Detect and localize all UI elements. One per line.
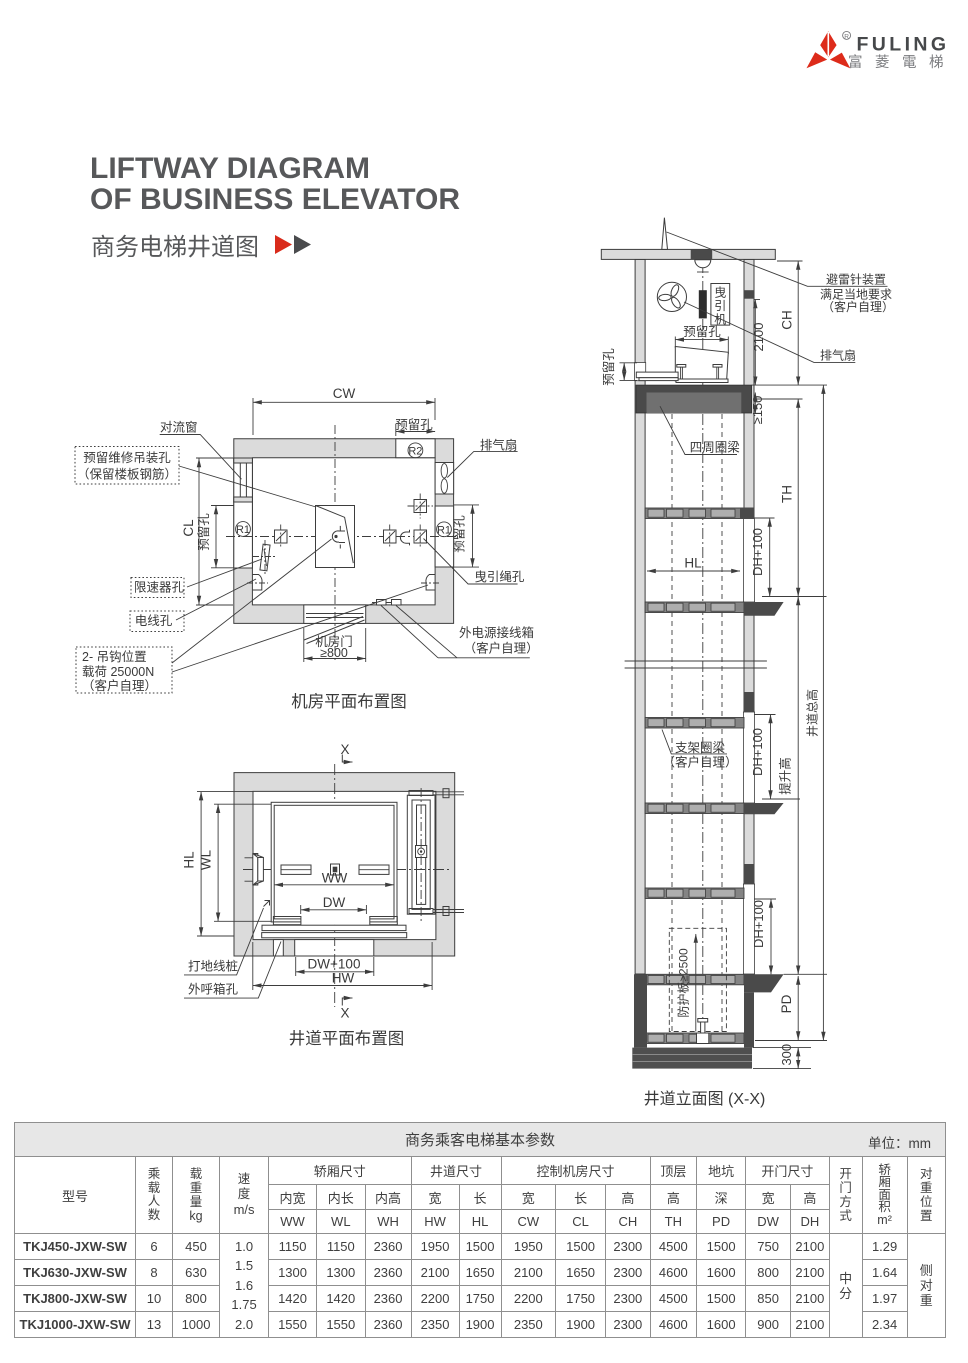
- svg-text:对流窗: 对流窗: [160, 421, 198, 435]
- svg-text:井道平面布置图: 井道平面布置图: [289, 1029, 405, 1048]
- svg-text:CL: CL: [181, 519, 196, 537]
- svg-text:打地线桩: 打地线桩: [188, 959, 238, 974]
- svg-text:CW: CW: [333, 386, 356, 401]
- svg-text:PD: PD: [779, 994, 794, 1013]
- svg-text:避雷针装置: 避雷针装置: [826, 272, 886, 287]
- svg-text:预留孔: 预留孔: [602, 348, 616, 386]
- svg-text:（保留楼板钢筋）: （保留楼板钢筋）: [77, 467, 177, 482]
- svg-text:预留孔: 预留孔: [197, 513, 211, 551]
- svg-text:外电源接线箱: 外电源接线箱: [459, 625, 534, 640]
- svg-text:曳引绳孔: 曳引绳孔: [474, 570, 525, 584]
- svg-text:HL: HL: [684, 556, 702, 571]
- svg-text:机房平面布置图: 机房平面布置图: [291, 692, 407, 711]
- svg-text:HW: HW: [332, 971, 355, 986]
- svg-text:（客户自理）: （客户自理）: [822, 299, 894, 314]
- svg-text:预留孔: 预留孔: [683, 325, 721, 339]
- svg-text:引: 引: [714, 299, 726, 313]
- svg-text:四周圈梁: 四周圈梁: [690, 440, 741, 455]
- svg-text:电线孔: 电线孔: [135, 614, 173, 628]
- svg-text:DW+100: DW+100: [308, 957, 361, 972]
- svg-text:井道总高: 井道总高: [805, 689, 820, 737]
- svg-text:预留维修吊装孔: 预留维修吊装孔: [83, 450, 171, 465]
- svg-text:R2: R2: [408, 445, 422, 457]
- svg-text:X: X: [340, 1006, 349, 1021]
- svg-text:井道立面图 (X-X): 井道立面图 (X-X): [644, 1090, 766, 1108]
- svg-text:外呼箱孔: 外呼箱孔: [188, 982, 239, 997]
- svg-text:提升高: 提升高: [778, 757, 793, 795]
- svg-text:排气扇: 排气扇: [820, 348, 856, 363]
- svg-text:DW: DW: [323, 895, 346, 910]
- svg-text:2- 吊钩位置: 2- 吊钩位置: [82, 649, 147, 664]
- svg-text:WW: WW: [322, 871, 348, 886]
- svg-text:R1: R1: [236, 524, 250, 536]
- svg-text:支架圈梁: 支架圈梁: [675, 740, 726, 755]
- svg-text:DH+100: DH+100: [751, 900, 766, 948]
- svg-text:TH: TH: [780, 485, 795, 503]
- svg-text:CH: CH: [780, 310, 795, 330]
- svg-text:300: 300: [779, 1044, 794, 1066]
- svg-text:（客户自理）: （客户自理）: [662, 755, 737, 770]
- svg-text:HL: HL: [182, 851, 197, 869]
- svg-text:防护板≥2500: 防护板≥2500: [676, 948, 691, 1018]
- svg-text:排气扇: 排气扇: [480, 437, 518, 452]
- svg-text:预留孔: 预留孔: [453, 515, 467, 553]
- svg-text:≥800: ≥800: [320, 646, 348, 660]
- svg-text:限速器孔: 限速器孔: [134, 581, 185, 595]
- svg-text:DH+100: DH+100: [750, 528, 765, 576]
- svg-text:2100: 2100: [751, 323, 766, 352]
- svg-text:载荷 25000N: 载荷 25000N: [82, 665, 154, 679]
- svg-text:WL: WL: [199, 849, 214, 870]
- svg-text:预留孔: 预留孔: [395, 418, 433, 432]
- svg-text:（客户自理）: （客户自理）: [82, 678, 157, 693]
- svg-text:DH+100: DH+100: [750, 728, 765, 776]
- svg-text:（客户自理）: （客户自理）: [464, 641, 539, 656]
- svg-text:曳: 曳: [714, 286, 726, 300]
- svg-text:R1: R1: [437, 524, 451, 536]
- svg-text:≥150: ≥150: [750, 396, 765, 425]
